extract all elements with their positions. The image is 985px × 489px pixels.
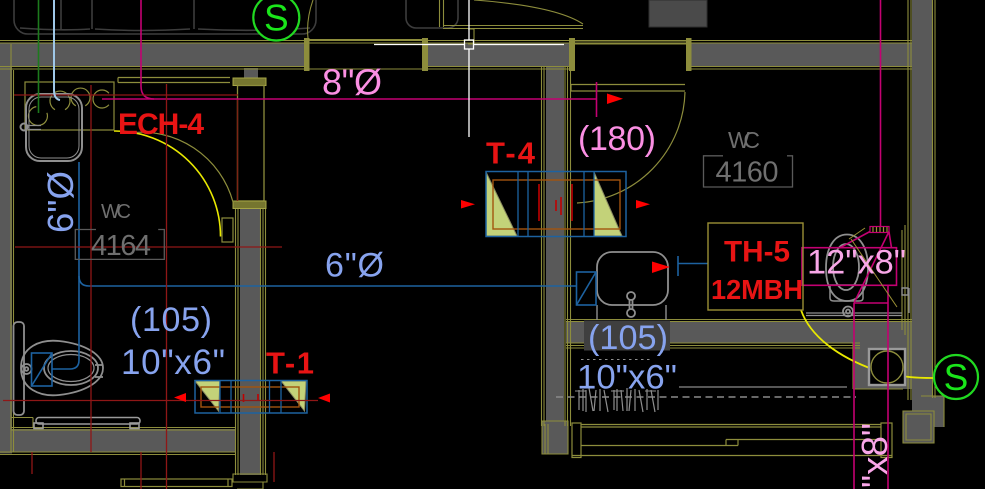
svg-text:(105): (105)	[588, 319, 668, 357]
svg-text:ECH-4: ECH-4	[118, 108, 204, 141]
svg-text:8"Ø: 8"Ø	[322, 62, 382, 103]
svg-text:WC: WC	[728, 127, 760, 153]
svg-text:10"x6": 10"x6"	[577, 359, 677, 397]
svg-text:4160: 4160	[716, 157, 779, 189]
svg-text:WC: WC	[101, 201, 131, 223]
svg-text:4164: 4164	[91, 230, 151, 262]
svg-text:12"x8": 12"x8"	[807, 244, 906, 282]
svg-text:6"Ø: 6"Ø	[40, 171, 81, 233]
svg-text:S: S	[264, 0, 289, 39]
svg-text:12MBH: 12MBH	[711, 274, 803, 305]
svg-text:TH-5: TH-5	[724, 236, 790, 269]
svg-text:T-4: T-4	[486, 136, 536, 171]
svg-text:(105): (105)	[130, 301, 212, 339]
svg-text:(180): (180)	[578, 120, 656, 158]
svg-text:12"x8": 12"x8"	[854, 423, 895, 489]
svg-text:T-1: T-1	[266, 346, 314, 381]
svg-text:6"Ø: 6"Ø	[325, 247, 384, 285]
svg-text:10"x6": 10"x6"	[121, 343, 225, 382]
svg-text:S: S	[944, 357, 969, 398]
